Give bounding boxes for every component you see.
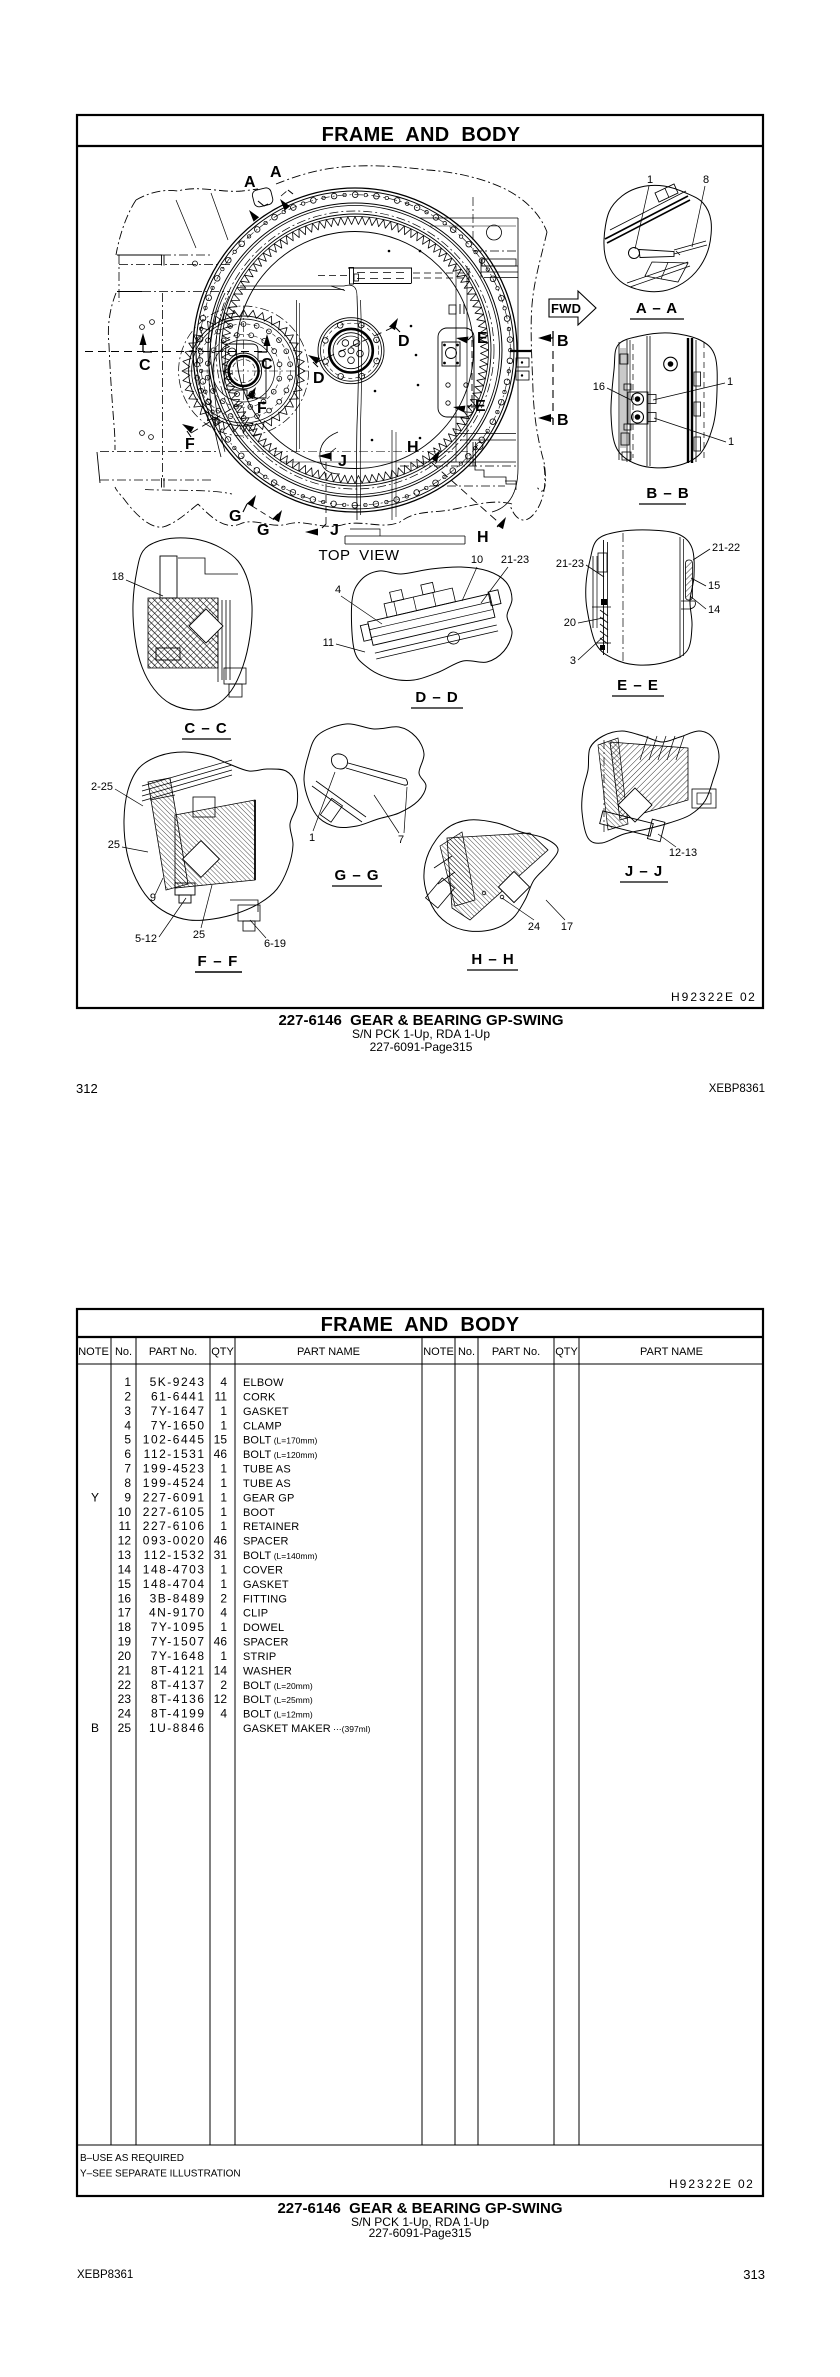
svg-text:227-6091-Page315: 227-6091-Page315 [369,2226,472,2240]
svg-text:312: 312 [76,1081,98,1096]
svg-text:12: 12 [118,1534,132,1548]
svg-text:11: 11 [215,1389,228,1403]
svg-text:1: 1 [220,1462,227,1476]
svg-text:5: 5 [124,1433,131,1447]
svg-text:GASKET: GASKET [243,1579,289,1591]
svg-text:15: 15 [118,1577,132,1591]
svg-text:11: 11 [119,1519,132,1533]
svg-text:10: 10 [471,554,483,566]
svg-text:3: 3 [570,655,576,667]
svg-text:4: 4 [220,1375,227,1389]
svg-text:1: 1 [220,1418,227,1432]
svg-text:12-13: 12-13 [669,847,697,859]
svg-text:148-4703: 148-4703 [143,1562,206,1576]
svg-text:STRIP: STRIP [243,1651,276,1663]
svg-text:199-4524: 199-4524 [143,1476,206,1490]
svg-text:9: 9 [150,892,156,904]
svg-text:1: 1 [220,1649,227,1663]
svg-text:FWD: FWD [551,301,581,316]
svg-text:A: A [270,164,282,181]
svg-text:7Y-1095: 7Y-1095 [151,1620,206,1634]
svg-text:02: 02 [738,2177,754,2191]
svg-text:F: F [185,436,195,453]
svg-text:GEAR GP: GEAR GP [243,1492,295,1504]
svg-text:PART No.: PART No. [492,1346,540,1358]
svg-text:7: 7 [124,1462,131,1476]
svg-text:4: 4 [220,1606,227,1620]
svg-text:C: C [139,357,151,374]
svg-text:6: 6 [124,1447,131,1461]
svg-text:G: G [257,522,269,539]
svg-text:BOLT (L=12mm): BOLT (L=12mm) [243,1709,313,1721]
svg-text:21-23: 21-23 [501,554,529,566]
svg-text:No.: No. [458,1346,475,1358]
svg-text:23: 23 [118,1692,132,1706]
svg-text:7: 7 [398,834,404,846]
svg-text:20: 20 [118,1649,132,1663]
svg-text:BOLT (L=170mm): BOLT (L=170mm) [243,1435,318,1447]
svg-text:BOLT (L=25mm): BOLT (L=25mm) [243,1694,313,1706]
svg-text:1: 1 [647,174,653,186]
svg-text:CLAMP: CLAMP [243,1420,282,1432]
svg-text:1: 1 [727,376,733,388]
svg-text:25: 25 [193,929,205,941]
svg-text:F – F: F – F [197,953,238,970]
svg-text:QTY: QTY [211,1346,234,1358]
svg-text:D: D [398,333,410,350]
svg-text:8T-4136: 8T-4136 [151,1692,206,1706]
svg-text:227-6091-Page315: 227-6091-Page315 [370,1040,473,1054]
svg-text:PART NAME: PART NAME [297,1346,360,1358]
svg-text:BOLT (L=20mm): BOLT (L=20mm) [243,1680,313,1692]
svg-text:313: 313 [743,2267,765,2282]
svg-text:B: B [557,412,569,429]
svg-text:1: 1 [220,1490,227,1504]
svg-text:FRAME AND BODY: FRAME AND BODY [322,124,521,146]
svg-text:25: 25 [118,1721,132,1735]
svg-text:2: 2 [124,1389,131,1403]
svg-text:21: 21 [118,1663,132,1677]
svg-text:H92322E: H92322E [671,990,735,1004]
svg-text:227-6091: 227-6091 [143,1490,206,1504]
svg-text:6-19: 6-19 [264,938,286,950]
svg-text:NOTE: NOTE [423,1346,454,1358]
svg-text:RETAINER: RETAINER [243,1521,299,1533]
svg-text:02: 02 [740,990,756,1004]
svg-text:Y: Y [91,1490,99,1504]
svg-text:A – A: A – A [636,300,678,317]
svg-text:ELBOW: ELBOW [243,1377,284,1389]
svg-text:8: 8 [703,174,709,186]
svg-text:B: B [557,333,569,350]
svg-text:SPACER: SPACER [243,1536,289,1548]
svg-text:GASKET MAKER ⋯(397ml): GASKET MAKER ⋯(397ml) [243,1723,371,1735]
svg-text:61-6441: 61-6441 [151,1389,206,1403]
svg-text:14: 14 [708,604,720,616]
svg-text:BOLT (L=140mm): BOLT (L=140mm) [243,1550,318,1562]
svg-text:J: J [338,453,347,470]
svg-text:PART NAME: PART NAME [640,1346,703,1358]
svg-text:8T-4199: 8T-4199 [151,1707,206,1721]
svg-text:FITTING: FITTING [243,1593,287,1605]
svg-text:J: J [330,522,339,539]
svg-text:J – J: J – J [625,863,663,880]
svg-text:4: 4 [220,1707,227,1721]
svg-text:31: 31 [214,1548,228,1562]
svg-text:GASKET: GASKET [243,1406,289,1418]
svg-text:21-23: 21-23 [556,558,584,570]
svg-text:S/N PCK 1-Up, RDA 1-Up: S/N PCK 1-Up, RDA 1-Up [352,1027,490,1041]
svg-text:1: 1 [728,436,734,448]
svg-text:8: 8 [124,1476,131,1490]
svg-text:H – H: H – H [471,951,514,968]
svg-text:17: 17 [118,1606,132,1620]
svg-text:TUBE AS: TUBE AS [243,1464,291,1476]
svg-text:2: 2 [220,1678,227,1692]
svg-text:C – C: C – C [184,720,227,737]
svg-text:BOLT (L=120mm): BOLT (L=120mm) [243,1449,318,1461]
svg-text:FRAME AND BODY: FRAME AND BODY [321,1314,520,1336]
svg-text:7Y-1647: 7Y-1647 [151,1404,206,1418]
svg-text:WASHER: WASHER [243,1665,292,1677]
svg-text:1: 1 [220,1404,227,1418]
svg-text:CLIP: CLIP [243,1608,268,1620]
svg-text:15: 15 [708,580,720,592]
svg-text:2: 2 [220,1591,227,1605]
svg-text:12: 12 [214,1692,228,1706]
svg-text:QTY: QTY [555,1346,578,1358]
svg-text:No.: No. [115,1346,132,1358]
svg-text:2-25: 2-25 [91,781,113,793]
svg-text:A: A [244,174,256,191]
svg-text:B – B: B – B [646,485,689,502]
svg-text:9: 9 [124,1490,131,1504]
svg-text:1: 1 [220,1620,227,1634]
svg-text:B: B [91,1721,99,1735]
svg-text:16: 16 [118,1591,132,1605]
svg-text:14: 14 [214,1663,228,1677]
svg-text:DOWEL: DOWEL [243,1622,284,1634]
svg-text:14: 14 [118,1562,132,1576]
svg-text:F: F [257,400,267,417]
svg-text:SPACER: SPACER [243,1637,289,1649]
svg-text:3B-8489: 3B-8489 [150,1591,206,1605]
svg-text:16: 16 [593,381,605,393]
svg-text:4: 4 [335,584,341,596]
svg-text:H92322E: H92322E [669,2177,733,2191]
svg-text:7Y-1507: 7Y-1507 [151,1635,206,1649]
svg-text:4: 4 [124,1418,131,1432]
svg-text:199-4523: 199-4523 [143,1462,206,1476]
svg-text:D: D [313,370,325,387]
svg-text:18: 18 [118,1620,132,1634]
svg-text:E: E [477,330,488,347]
svg-text:B–USE AS REQUIRED: B–USE AS REQUIRED [80,2153,184,2164]
svg-text:46: 46 [214,1635,228,1649]
svg-text:G – G: G – G [334,867,379,884]
svg-text:20: 20 [564,617,576,629]
svg-text:112-1531: 112-1531 [144,1447,206,1461]
svg-text:22: 22 [118,1678,132,1692]
svg-text:10: 10 [118,1505,132,1519]
svg-text:1: 1 [220,1577,227,1591]
svg-text:7Y-1648: 7Y-1648 [151,1649,206,1663]
svg-text:11: 11 [323,637,334,649]
svg-text:TUBE AS: TUBE AS [243,1478,291,1490]
svg-text:093-0020: 093-0020 [143,1534,206,1548]
svg-text:4N-9170: 4N-9170 [149,1606,206,1620]
svg-text:5K-9243: 5K-9243 [150,1375,206,1389]
svg-text:COVER: COVER [243,1564,283,1576]
svg-text:17: 17 [561,921,573,933]
svg-text:G: G [229,508,241,525]
svg-text:XEBP8361: XEBP8361 [77,2269,133,2281]
svg-text:25: 25 [108,839,120,851]
svg-text:46: 46 [214,1447,228,1461]
svg-text:19: 19 [118,1635,132,1649]
svg-text:C: C [261,356,273,373]
svg-text:148-4704: 148-4704 [143,1577,206,1591]
svg-text:1: 1 [309,832,315,844]
svg-text:21-22: 21-22 [712,542,740,554]
svg-text:24: 24 [528,921,540,933]
svg-text:1: 1 [220,1505,227,1519]
svg-text:PART No.: PART No. [149,1346,197,1358]
svg-text:1: 1 [220,1562,227,1576]
svg-text:H: H [407,439,419,456]
svg-text:H: H [477,529,489,546]
svg-text:BOOT: BOOT [243,1507,275,1519]
svg-text:XEBP8361: XEBP8361 [709,1083,765,1095]
svg-text:24: 24 [118,1707,132,1721]
svg-text:1U-8846: 1U-8846 [149,1721,206,1735]
svg-text:8T-4121: 8T-4121 [151,1663,206,1677]
svg-text:TOP VIEW: TOP VIEW [318,547,399,564]
svg-text:CORK: CORK [243,1391,276,1403]
svg-text:15: 15 [214,1433,228,1447]
svg-text:D – D: D – D [415,689,458,706]
svg-text:8T-4137: 8T-4137 [151,1678,206,1692]
svg-text:7Y-1650: 7Y-1650 [151,1418,206,1432]
svg-text:NOTE: NOTE [78,1346,109,1358]
svg-text:3: 3 [124,1404,131,1418]
svg-text:13: 13 [118,1548,132,1562]
svg-text:1: 1 [124,1375,131,1389]
svg-text:18: 18 [112,571,124,583]
svg-text:112-1532: 112-1532 [144,1548,206,1562]
svg-text:1: 1 [220,1519,227,1533]
svg-text:227-6105: 227-6105 [143,1505,206,1519]
svg-text:46: 46 [214,1534,228,1548]
svg-text:Y–SEE SEPARATE ILLUSTRATION: Y–SEE SEPARATE ILLUSTRATION [80,2169,241,2180]
svg-text:102-6445: 102-6445 [143,1433,206,1447]
svg-text:1: 1 [220,1476,227,1490]
svg-text:5-12: 5-12 [135,933,157,945]
svg-text:E – E: E – E [617,677,659,694]
svg-text:E: E [475,398,486,415]
svg-text:227-6106: 227-6106 [143,1519,206,1533]
